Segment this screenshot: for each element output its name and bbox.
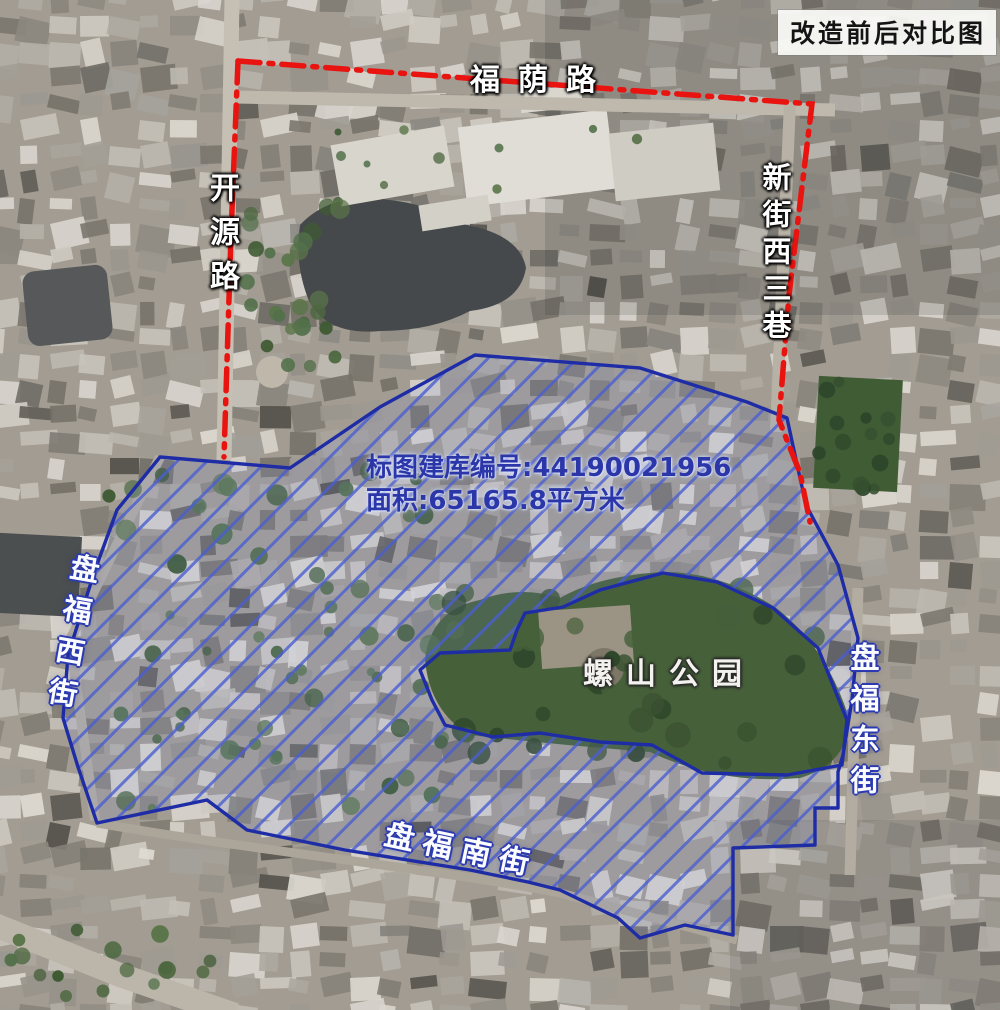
road-label-xinjie-west-3-lane: 新街西三巷 [760, 162, 789, 347]
zone-area: 面积:65165.8平方米 [366, 485, 731, 518]
comparison-map: 福荫路 开源路 新街西三巷 盘福西街 盘福东街 盘福南街 螺山公园 标图建库编号… [0, 0, 1000, 1010]
zone-annotation: 标图建库编号:44190021956 面积:65165.8平方米 [366, 452, 731, 518]
road-label-fuyin-road: 福荫路 [470, 66, 614, 96]
road-label-panfu-east-street: 盘福东街 [848, 642, 877, 806]
road-label-kaiyuan-road: 开源路 [206, 172, 236, 304]
place-label-luoshan-park: 螺山公园 [583, 660, 755, 690]
zone-db-code: 标图建库编号:44190021956 [366, 452, 731, 485]
map-title-badge: 改造前后对比图 [778, 10, 996, 55]
